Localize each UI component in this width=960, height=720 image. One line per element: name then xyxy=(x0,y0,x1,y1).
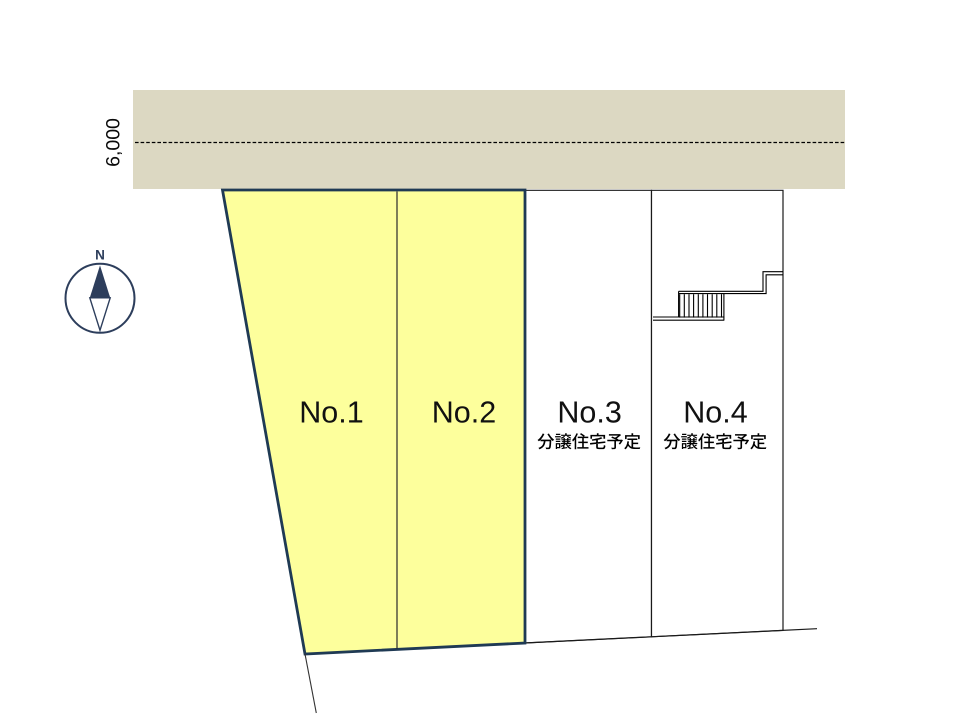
svg-text:No.2: No.2 xyxy=(432,396,496,430)
svg-text:N: N xyxy=(95,248,105,263)
svg-text:6,000: 6,000 xyxy=(103,118,125,167)
svg-text:No.4: No.4 xyxy=(683,396,747,430)
svg-text:No.3: No.3 xyxy=(557,396,621,430)
svg-text:No.1: No.1 xyxy=(299,396,363,430)
